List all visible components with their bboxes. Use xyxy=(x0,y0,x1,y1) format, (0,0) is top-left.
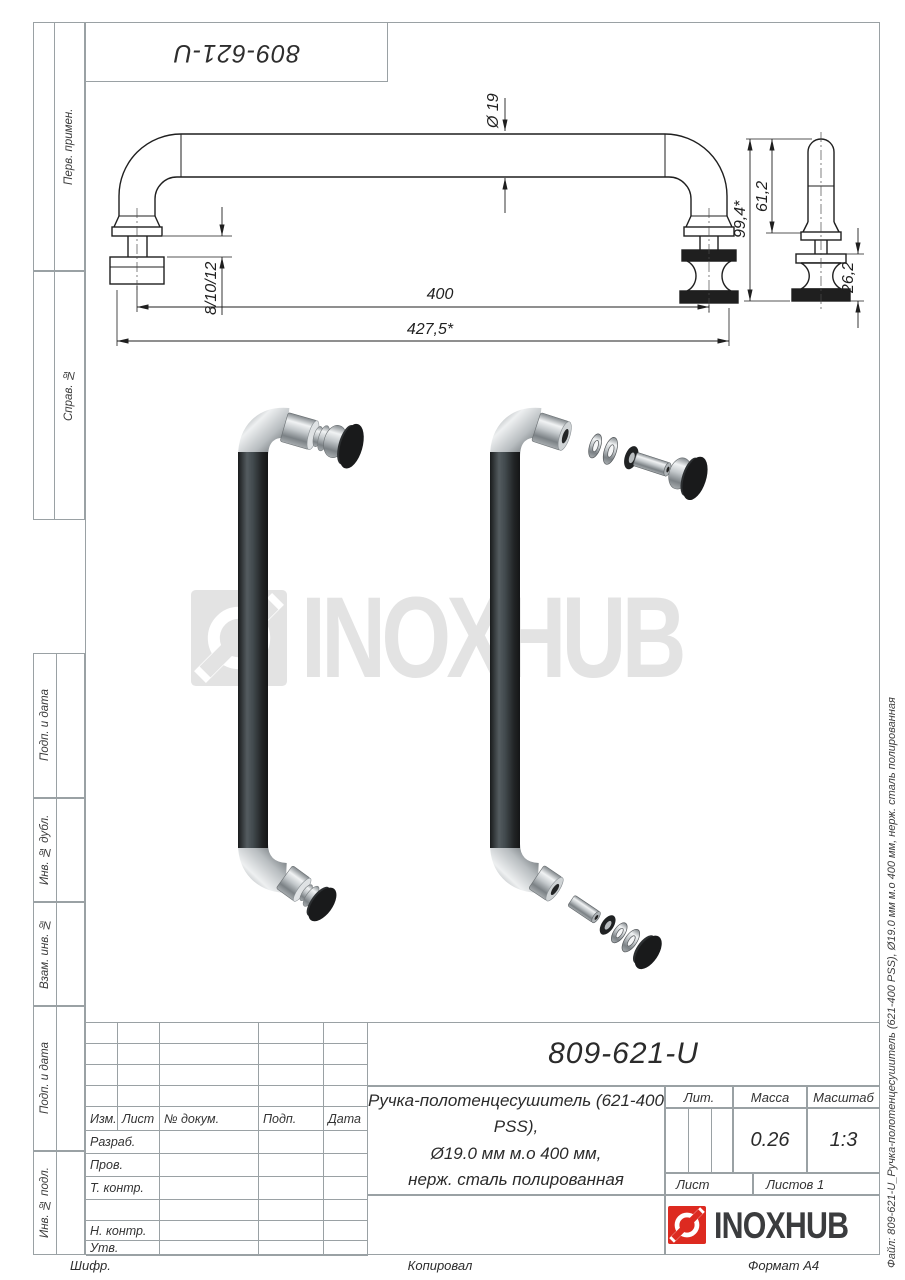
dim-overall-length: 427,5* xyxy=(407,321,454,338)
handle-assembled xyxy=(238,405,368,926)
blank-cell xyxy=(367,1195,665,1255)
col-header-list: Лист xyxy=(118,1107,160,1131)
scale-header: Масштаб xyxy=(807,1086,880,1108)
row-utv: Утв. xyxy=(86,1241,160,1256)
render-3d xyxy=(160,380,760,1030)
dim-glass-thickness: 8/10/12 xyxy=(203,262,220,315)
col-header-sign: Подп. xyxy=(259,1107,324,1131)
rev-cell xyxy=(118,1044,160,1065)
margin-box-podp-data-1: Подп. и дата xyxy=(33,653,85,798)
margin-label: Подп. и дата xyxy=(34,654,56,797)
margin-box-perv-primen: Перв. примен. xyxy=(33,22,85,271)
dim-side-upper: 61,2 xyxy=(754,181,771,212)
margin-box-vzam-inv: Взам. инв. № xyxy=(33,902,85,1006)
rev-cell xyxy=(259,1044,324,1065)
part-name-line1: Ручка-полотенцесушитель (621-400 PSS), xyxy=(368,1088,664,1141)
footer-format: Формат А4 xyxy=(748,1258,819,1273)
dim-diameter: Ø 19 xyxy=(485,93,502,129)
dim-side-lower: 26,2 xyxy=(840,262,857,294)
footer-copied: Копировал xyxy=(360,1258,520,1273)
logo-cell: INOXHUB xyxy=(665,1195,880,1255)
margin-label: Справ. № xyxy=(54,272,84,519)
margin-box-sprav-no: Справ. № xyxy=(33,271,85,520)
margin-label: Перв. примен. xyxy=(54,23,84,270)
sheets-cell: Листов 1 xyxy=(753,1173,880,1195)
margin-label: Инв. № дубл. xyxy=(34,799,56,901)
technical-drawing: Ø 19 8/10/12 400 427,5* 61,2 99,4* 26,2 xyxy=(85,60,880,370)
brand-name: INOXHUB xyxy=(714,1207,848,1244)
margin-box-podp-data-2: Подп. и дата xyxy=(33,1006,85,1151)
dim-hole-spacing: 400 xyxy=(427,286,454,303)
rev-cell xyxy=(160,1044,259,1065)
rev-cell xyxy=(118,1065,160,1086)
col-header-date: Дата xyxy=(324,1107,368,1131)
rev-cell xyxy=(86,1086,118,1107)
lit-header: Лит. xyxy=(665,1086,733,1108)
rev-cell xyxy=(118,1023,160,1044)
part-name-line3: нерж. сталь полированная xyxy=(408,1167,624,1193)
rev-cell xyxy=(259,1086,324,1107)
rev-cell xyxy=(118,1086,160,1107)
signature-table: Изм. Лист № докум. Подп. Дата Разраб. Пр… xyxy=(85,1022,368,1255)
mass-header: Масса xyxy=(733,1086,807,1108)
row-razrab: Разраб. xyxy=(86,1131,160,1154)
col-header-doc: № докум. xyxy=(160,1107,259,1131)
mass-value: 0.26 xyxy=(733,1108,807,1173)
handle-exploded xyxy=(490,405,712,973)
rev-cell xyxy=(86,1065,118,1086)
margin-label: Инв. № подл. xyxy=(34,1152,56,1254)
rev-cell xyxy=(160,1086,259,1107)
row-nkontr: Н. контр. xyxy=(86,1221,160,1241)
rev-cell xyxy=(86,1023,118,1044)
footer-cipher: Шифр. xyxy=(70,1258,111,1273)
rev-cell xyxy=(324,1086,368,1107)
margin-label: Взам. инв. № xyxy=(34,903,56,1005)
row-prov: Пров. xyxy=(86,1154,160,1177)
file-label: Файл: 809-621-U_Ручка-полотенцесушитель … xyxy=(886,710,898,1268)
scale-value: 1:3 xyxy=(807,1108,880,1173)
designation: 809-621-U xyxy=(548,1037,699,1071)
lit-value-cell xyxy=(665,1108,733,1173)
margin-label: Подп. и дата xyxy=(34,1007,56,1150)
row-tkontr: Т. контр. xyxy=(86,1177,160,1200)
part-name-cell: Ручка-полотенцесушитель (621-400 PSS), Ø… xyxy=(367,1086,665,1195)
sheet-cell: Лист xyxy=(665,1173,753,1195)
rev-cell xyxy=(259,1065,324,1086)
drawing-sheet: 809-621-U Перв. примен. Справ. № Подп. и… xyxy=(0,0,905,1280)
margin-box-inv-podl: Инв. № подл. xyxy=(33,1151,85,1255)
col-header-izm: Изм. xyxy=(86,1107,118,1131)
designation-cell: 809-621-U xyxy=(367,1022,880,1086)
rev-cell xyxy=(86,1044,118,1065)
dim-side-total: 99,4* xyxy=(732,200,749,238)
row-empty xyxy=(86,1200,160,1221)
rev-cell xyxy=(324,1044,368,1065)
part-name-line2: Ø19.0 мм м.о 400 мм, xyxy=(431,1141,602,1167)
rev-cell xyxy=(160,1065,259,1086)
margin-box-inv-dubl: Инв. № дубл. xyxy=(33,798,85,902)
inoxhub-logo-icon xyxy=(668,1206,706,1244)
rev-cell xyxy=(324,1065,368,1086)
